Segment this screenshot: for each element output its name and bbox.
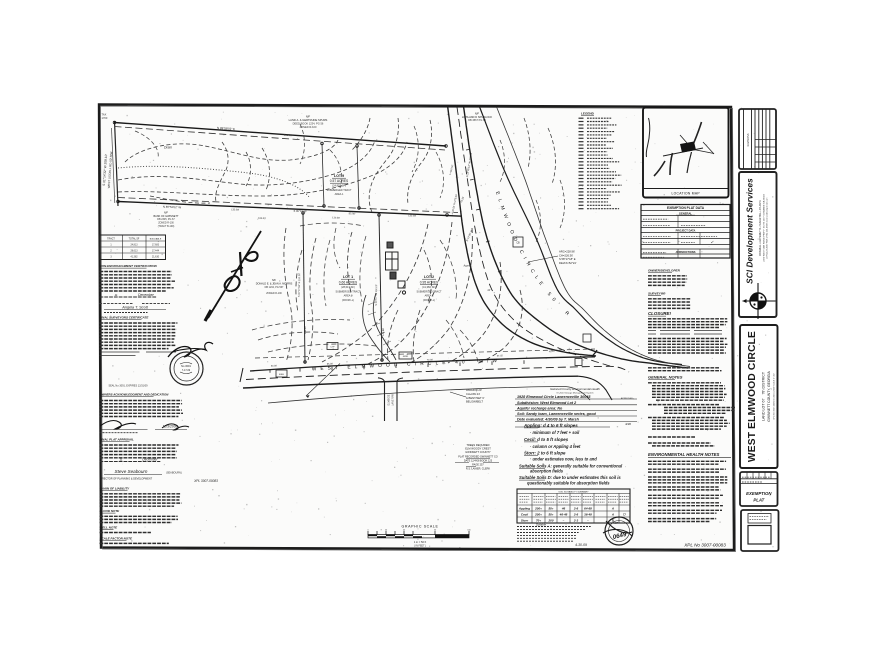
svg-text:Aquifer recharge area: No: Aquifer recharge area: No [516,406,563,410]
svg-text:(FROM LL): (FROM LL) [423,299,435,302]
svg-text:(TRACT B-100): (TRACT B-100) [158,225,175,228]
svg-text:95.00': 95.00' [349,212,356,215]
svg-text:Subdivision: West Elmwood Lo: Subdivision: West Elmwood Lot 2 [517,401,577,405]
svg-text:200+: 200+ [534,512,542,516]
svg-text:SUBMERGED TRACT: SUBMERGED TRACT [326,189,352,192]
svg-text:523.00': 523.00' [284,133,293,138]
svg-text:· under estimates now, less to: · under estimates now, less to and [530,456,597,461]
svg-text:CH=226.36': CH=226.36' [559,253,574,257]
svg-text:(SEABOURN): (SEABOURN) [166,472,182,475]
svg-text:LAND LOT 67 7th DISTRICT: LAND LOT 67 7th DISTRICT [762,371,766,421]
svg-text:No 3091: No 3091 [181,364,191,368]
svg-text:200: 200 [547,518,553,522]
svg-text:WELL NOTE: WELL NOTE [100,526,119,530]
svg-text:36-48: 36-48 [584,512,592,516]
svg-text:0.95 ACRES: 0.95 ACRES [420,280,439,284]
svg-text:DB 1234, PG 567: DB 1234, PG 567 [265,286,284,289]
svg-text:JURISDICTIONS: JURISDICTIONS [675,250,695,254]
svg-text:SUBMERGED TRACT: SUBMERGED TRACT [335,290,361,293]
svg-text:DELTA=52°24': DELTA=52°24' [559,261,577,265]
svg-text:On-Site Sewage Management Syst: On-Site Sewage Management System [556,391,593,394]
svg-text:Approx.: Approx. [463,264,473,268]
svg-text:2-6: 2-6 [573,506,579,510]
svg-text:Storr: Storr [521,518,529,522]
svg-text:(FROM LL): (FROM LL) [342,299,354,302]
svg-text:ROSWELL • ALPHARETTA • SUGAR H: ROSWELL • ALPHARETTA • SUGAR HILL • ATLA… [759,200,762,256]
svg-text:TOTAL SF: TOTAL SF [129,237,140,240]
svg-text:Cecil: Cecil [521,512,528,516]
svg-text:50.00': 50.00' [271,365,278,367]
svg-text:DEED BOOK 1234, PG 56: DEED BOOK 1234, PG 56 [293,122,324,126]
svg-text:& BENT/SET 6': & BENT/SET 6' [466,396,485,400]
svg-text:Drain: Drain [164,146,172,150]
svg-text:Angela T. Scott: Angela T. Scott [121,306,149,310]
svg-text:REVISIONS: REVISIONS [747,133,750,146]
svg-text:24,813: 24,813 [130,244,138,246]
svg-text:DONALD E. & JEAN A. MORRIS: DONALD E. & JEAN A. MORRIS [256,283,293,286]
svg-text:OWNER/DEVELOPER: OWNER/DEVELOPER [648,269,681,273]
svg-text:FINAL PLAT APPROVAL: FINAL PLAT APPROVAL [100,438,135,442]
svg-text:ENVIRONMENTAL HEALTH NOTES: ENVIRONMENTAL HEALTH NOTES [648,452,720,457]
svg-text:EXEMPTION: EXEMPTION [746,491,772,496]
svg-text:GRAPHIC SCALE: GRAPHIC SCALE [402,525,439,529]
svg-text:AREA 2: AREA 2 [425,295,434,298]
svg-text:WEST ELMWOOD CIRCLE: WEST ELMWOOD CIRCLE [747,331,758,462]
svg-text:2-3: 2-3 [573,518,579,522]
svg-text:Appling: Appling [518,506,530,510]
svg-text:S 58°17'18" E: S 58°17'18" E [559,257,576,261]
svg-text:200+: 200+ [534,506,542,510]
svg-text:132.08': 132.08' [332,216,340,219]
svg-text:PROJECT DATA: PROJECT DATA [676,228,696,232]
svg-text:Steve Seabourn: Steve Seabourn [115,469,148,474]
svg-text:SEAL No 3091, EXPIRES 12/31/09: SEAL No 3091, EXPIRES 12/31/09 [108,385,148,388]
svg-text:21,630: 21,630 [152,256,160,258]
svg-text:0.57 ACRES: 0.57 ACRES [330,179,349,183]
svg-text:N/F: N/F [306,115,311,119]
svg-text:40'BL: 40'BL [403,356,409,358]
svg-text:N/F: N/F [272,279,277,282]
svg-text:LOT 2: LOT 2 [424,275,434,279]
svg-text:(28,613 SF): (28,613 SF) [341,285,355,289]
svg-text:XPL 3007-00083: XPL 3007-00083 [193,479,218,483]
svg-text:ZONED R-100: ZONED R-100 [300,125,317,129]
svg-text:EXEMPTION PLAT DATA: EXEMPTION PLAT DATA [667,206,705,210]
svg-text:50+: 50+ [548,512,553,516]
svg-text:LEGEND: LEGEND [581,112,595,116]
svg-text:148.86': 148.86' [382,328,385,336]
svg-text:65.00': 65.00' [327,363,334,365]
svg-text:AREA 1: AREA 1 [335,193,344,196]
svg-text:(770) 123-4567 FAX (770) 123-: (770) 123-4567 FAX (770) 123-4568 www.sc… [766,197,769,258]
svg-text:28,613: 28,613 [130,250,138,252]
svg-text:132.08': 132.08' [408,214,417,217]
svg-text:GWINNETT COUNTY: GWINNETT COUNTY [465,450,491,454]
svg-text:4/30: 4/30 [625,422,631,426]
svg-text:1928 Elmwood Circle Lawrencev: 1928 Elmwood Circle Lawrenceville 30045 [517,395,591,399]
svg-text:AREA 2: AREA 2 [344,295,353,298]
svg-text:100.00': 100.00' [258,217,266,220]
svg-text:57.35': 57.35' [497,355,504,357]
svg-text:DIRECTOR OF PLANNING & DEVELOP: DIRECTOR OF PLANNING & DEVELOPMENT [100,477,153,480]
svg-text:PLAT: PLAT [753,498,764,503]
svg-text:CB: CB [516,242,520,245]
svg-text:Suitable: Suitable [536,523,547,527]
svg-text:Storr: 2 to 6 ft slope: Storr: 2 to 6 ft slope [524,451,566,456]
svg-text:0.66 ACRES: 0.66 ACRES [339,280,358,284]
svg-text:absorption fields: absorption fields [530,469,564,474]
svg-text:CLOSURE!: CLOSURE! [648,311,671,316]
svg-text:132.08': 132.08' [231,208,240,211]
svg-text:24': 24' [487,289,491,292]
svg-text:LAND A. & GERTRUDE SPURS: LAND A. & GERTRUDE SPURS [289,118,328,122]
svg-text:S 89°52' W: S 89°52' W [293,209,307,214]
svg-text:ELM WOODY CREST: ELM WOODY CREST [465,447,491,451]
svg-text:4/7: 4/7 [614,521,618,525]
svg-text:LOCATION MAP: LOCATION MAP [672,191,701,195]
svg-text:CHAIN OF LIABILITY: CHAIN OF LIABILITY [100,487,131,491]
svg-text:OWNERS ACKNOWLEDGMENT AND DEDI: OWNERS ACKNOWLEDGMENT AND DEDICATION [100,393,170,397]
svg-text:A: A [611,512,614,516]
svg-text:TREES REQUIRED: TREES REQUIRED [466,443,489,447]
svg-text:DATE 12/4/08 BOOK 123: DATE 12/4/08 BOOK 123 [464,459,493,462]
svg-text:17,444: 17,444 [152,250,160,252]
svg-text:XPL No 3007-00083: XPL No 3007-00083 [683,543,726,548]
svg-text:GENERAL NOTES: GENERAL NOTES [648,375,683,380]
svg-text:BELOW/BELT: BELOW/BELT [466,400,483,404]
svg-text:ARC=228.96': ARC=228.96' [559,250,575,254]
svg-text:questionably suitable for abso: questionably suitable for absorption fie… [527,481,610,486]
svg-text:LOT 1: LOT 1 [343,275,353,279]
svg-text:DB 4567 PG 89: DB 4567 PG 89 [468,119,486,122]
svg-text:NON-ENCROACHMENT CERTIFICATION: NON-ENCROACHMENT CERTIFICATION [100,264,158,268]
svg-text:46-48: 46-48 [559,512,568,516]
svg-text:50+: 50+ [548,506,553,510]
svg-text:· minimum of 7 feet + soil: · minimum of 7 feet + soil [530,430,580,435]
svg-text:ZONED R-100: ZONED R-100 [266,292,282,295]
svg-text:CH+DW 24': CH+DW 24' [466,392,481,396]
svg-text:4-30-09: 4-30-09 [575,543,587,547]
svg-text:S 00°07'58" E 150.00': S 00°07'58" E 150.00' [298,272,301,297]
svg-text:· column or Appling 4 feet: · column or Appling 4 feet [530,444,581,449]
svg-text:Cecil: d to 5 ft slopes: Cecil: d to 5 ft slopes [524,437,569,442]
svg-text:LANE R/W: LANE R/W [392,393,395,405]
svg-text:Suitable Soils D: due to unde: Suitable Soils D: due to under estimates… [519,475,621,480]
svg-text:SCI Development Services: SCI Development Services [746,178,755,284]
svg-text:BUILDABLE: BUILDABLE [150,237,162,240]
svg-text:( IN FEET ): ( IN FEET ) [414,545,426,548]
svg-text:SOIL SUITABILITY SUMMARY: SOIL SUITABILITY SUMMARY [558,490,589,493]
svg-text:11: 11 [114,293,117,297]
svg-text:PLAT RECORDED GWINNETT CO: PLAT RECORDED GWINNETT CO [458,455,498,458]
svg-text:N 89°52'02" W: N 89°52'02" W [163,205,182,210]
svg-text:SCALE FACTOR NOTE: SCALE FACTOR NOTE [100,536,133,540]
svg-text:FINAL SURVEYORS CERTIFICATE: FINAL SURVEYORS CERTIFICATE [100,316,150,320]
svg-text:SURVEYOR: SURVEYOR [648,292,666,296]
svg-text:7-17-09: 7-17-09 [182,369,191,372]
svg-text:GWINNETT COUNTY, GEORGIA: GWINNETT COUNTY, GEORGIA [767,370,771,421]
svg-text:SUBMERGED TRACT: SUBMERGED TRACT [416,290,442,293]
svg-text:(41,382 SF): (41,382 SF) [422,285,436,289]
svg-text:64-68: 64-68 [584,506,592,510]
svg-text:Date evaluated: 4/30/09 by T: Date evaluated: 4/30/09 by T. Marsh [517,418,580,422]
svg-text:PAGE 257: PAGE 257 [472,463,484,466]
svg-text:CTF: CTF [330,347,335,349]
svg-text:41,382: 41,382 [130,256,138,258]
svg-text:FLOOD NOTE: FLOOD NOTE [100,509,121,513]
svg-text:2-6: 2-6 [573,512,579,516]
svg-text:GENERAL: GENERAL [679,211,692,215]
svg-text:December: December [138,293,155,297]
svg-text:11: 11 [119,458,122,462]
svg-text:ELMSIDE: ELMSIDE [388,394,391,405]
svg-text:ANCHOR 20': ANCHOR 20' [466,388,482,392]
svg-text:XPL NO 3007-00083 13-AUG-2008: XPL NO 3007-00083 13-AUG-2008 SCALE 1"=5… [773,373,776,420]
svg-text:17,683: 17,683 [152,244,160,246]
svg-text:ZONED R-100: ZONED R-100 [158,221,174,224]
svg-text:Gwinnett County Environmental: Gwinnett County Environmental Health [550,387,600,391]
svg-text:12/3/2008: 12/3/2008 [162,425,177,429]
svg-text:46: 46 [561,506,566,510]
svg-text:A: A [611,506,614,510]
svg-text:✓: ✓ [710,240,714,245]
svg-text:2475 WEST OAK RIDGE PKWY • SUI: 2475 WEST OAK RIDGE PKWY • SUITE 100 • S… [762,193,765,261]
svg-text:TRACT: TRACT [107,237,115,240]
svg-text:40BL: 40BL [279,374,285,376]
svg-text:Appling: d 4 to 6 ft slopes: Appling: d 4 to 6 ft slopes [523,423,578,428]
svg-text:APPROVED: APPROVED [621,397,634,400]
svg-text:1 in = 50 ft: 1 in = 50 ft [414,540,426,544]
svg-text:Soil: Sandy loam, Lawrencevill: Soil: Sandy loam, Lawrenceville series, … [517,412,596,416]
svg-text:R.S. LANIER, CLERK: R.S. LANIER, CLERK [466,467,491,470]
svg-text:LOT 9: LOT 9 [334,174,344,178]
svg-text:1700: 1700 [102,116,108,120]
svg-text:December: December [142,458,158,462]
